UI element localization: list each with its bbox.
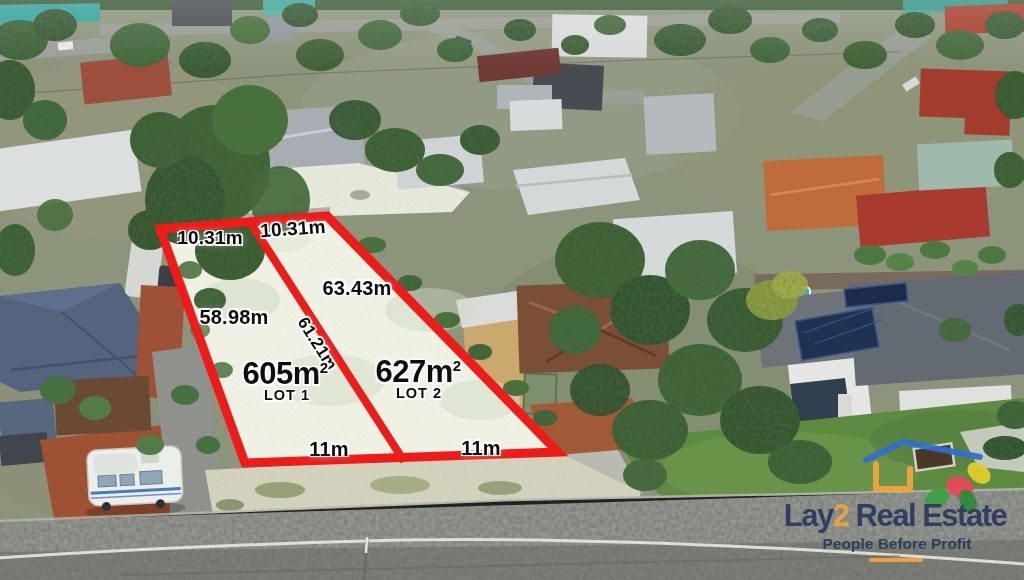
motorhome (82, 445, 186, 520)
aerial-photo-scene (0, 0, 1024, 580)
haze-overlay (0, 0, 1024, 70)
aerial-photo: 10.31m 10.31m 63.43m 58.98m 61.21m 605m2… (0, 0, 1024, 580)
